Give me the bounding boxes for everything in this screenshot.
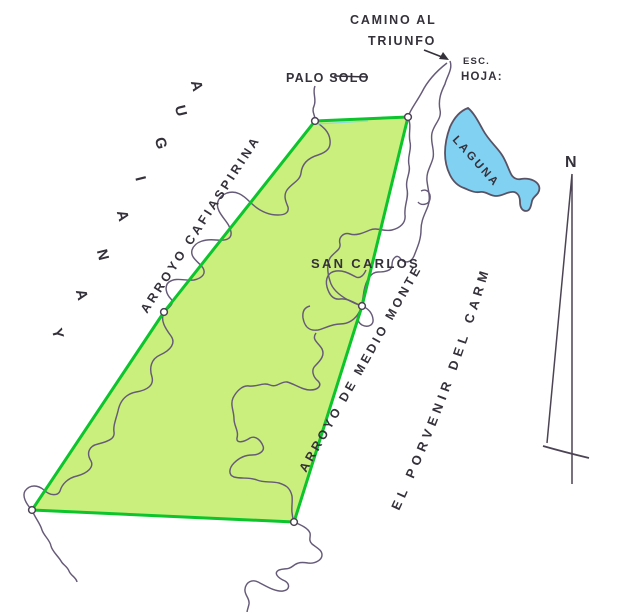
svg-text:HOJA:: HOJA: xyxy=(461,71,503,83)
svg-text:ESC.: ESC. xyxy=(463,56,490,67)
svg-text:TRIUNFO: TRIUNFO xyxy=(368,34,436,48)
svg-text:PALO SOLO: PALO SOLO xyxy=(286,71,370,85)
svg-text:CAMINO AL: CAMINO AL xyxy=(350,13,437,27)
svg-text:N: N xyxy=(565,154,577,171)
svg-text:SAN CARLOS: SAN CARLOS xyxy=(311,256,420,271)
